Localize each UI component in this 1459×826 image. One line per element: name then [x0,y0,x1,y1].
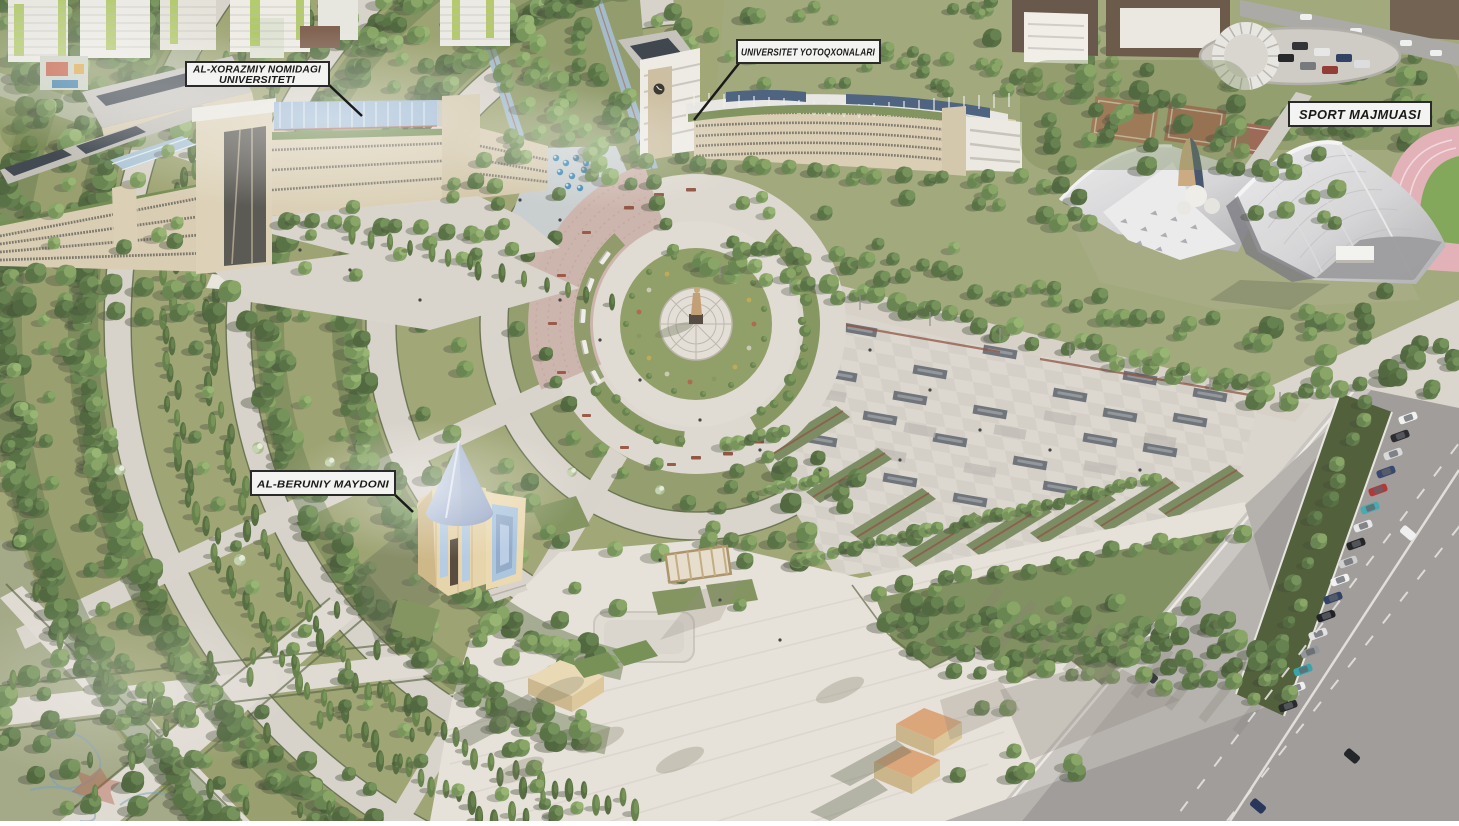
svg-text:SPORT MAJMUASI: SPORT MAJMUASI [1299,107,1421,122]
svg-text:AL-XORAZMIY NOMIDAGI: AL-XORAZMIY NOMIDAGI [192,65,321,76]
svg-text:AL-BERUNIY MAYDONI: AL-BERUNIY MAYDONI [256,480,389,491]
svg-text:UNIVERSITET YOTOQXONALARI: UNIVERSITET YOTOQXONALARI [741,48,875,59]
svg-text:UNIVERSITETI: UNIVERSITETI [219,75,295,86]
